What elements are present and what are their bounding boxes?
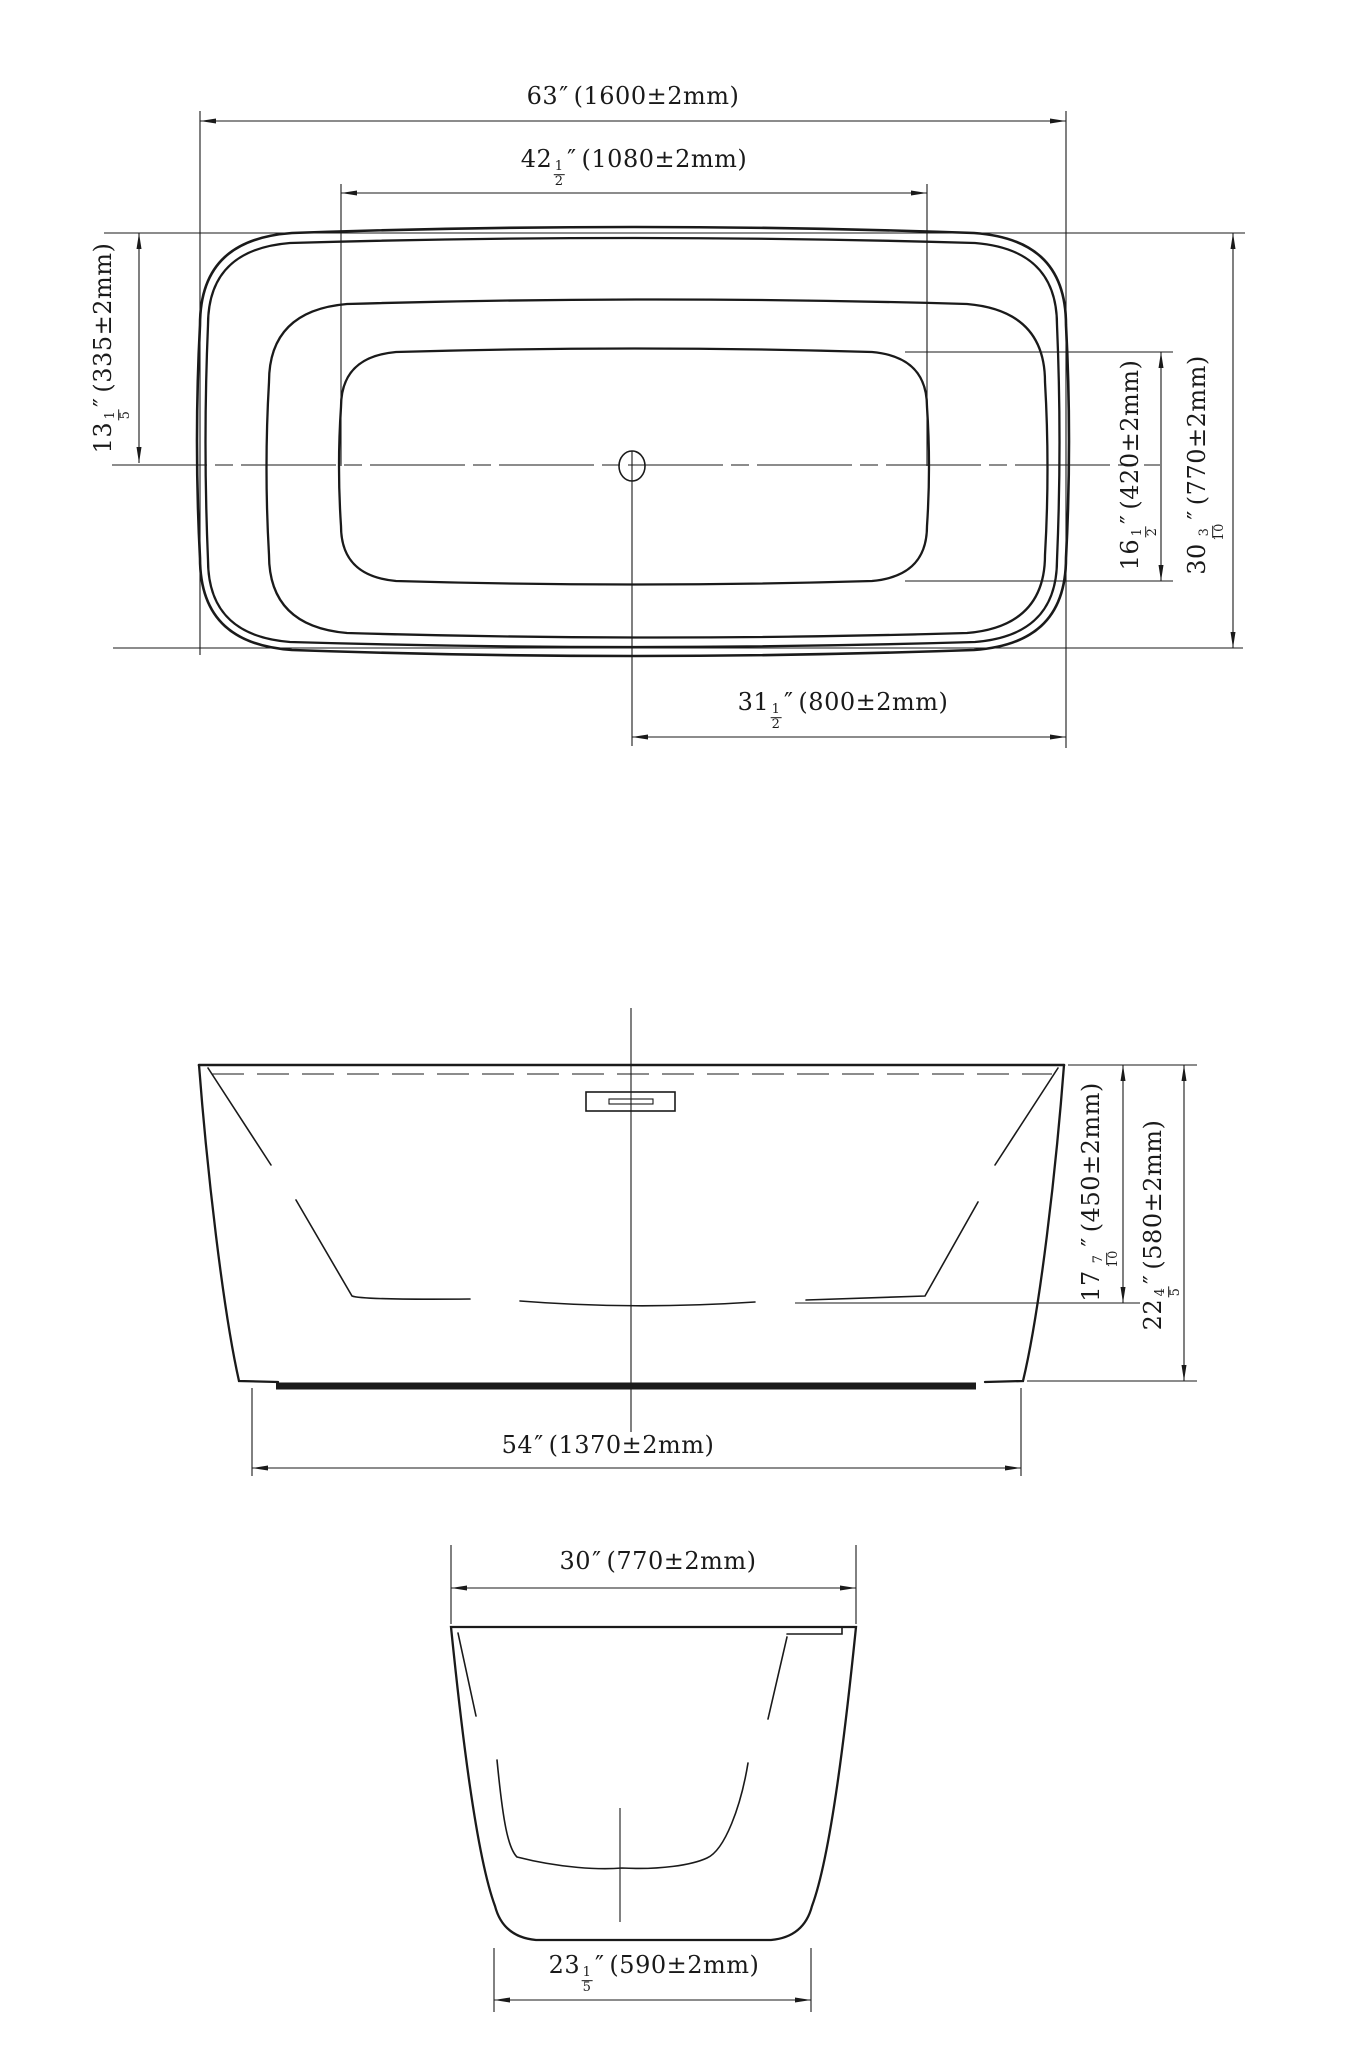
dim-value: 16 xyxy=(1116,539,1144,571)
dim-value: 22 xyxy=(1139,1299,1167,1331)
dim-metric: (450±2mm) xyxy=(1077,1082,1105,1232)
dim-metric: (335±2mm) xyxy=(89,243,117,393)
plan-outer-rim-outline xyxy=(197,227,1069,656)
plan-view xyxy=(104,111,1245,748)
inch-mark: ″ xyxy=(595,1951,604,1979)
inch-mark: ″ xyxy=(1139,1275,1167,1284)
dim-fraction: 15 xyxy=(104,409,133,421)
inch-mark: ″ xyxy=(1116,515,1144,524)
inch-mark: ″ xyxy=(89,398,117,407)
end-overflow-notch xyxy=(787,1628,842,1634)
front-interior-right-edge xyxy=(995,1068,1058,1165)
dim-fraction: 310 xyxy=(1198,522,1227,543)
plan-basin-bottom-outline xyxy=(339,349,929,585)
dim-fraction: 710 xyxy=(1092,1249,1121,1270)
front-basin-floor-left xyxy=(296,1200,470,1299)
dim-label-front-height: 2245″(580±2mm) xyxy=(1141,1120,1183,1331)
end-view xyxy=(451,1545,856,2012)
dim-label-front-depth: 17710″(450±2mm) xyxy=(1079,1082,1121,1302)
dim-value: 31 xyxy=(738,688,770,716)
dim-value: 54 xyxy=(502,1431,534,1459)
plan-basin-top-outline xyxy=(267,300,1048,638)
end-basin-floor xyxy=(497,1760,748,1869)
inch-mark: ″ xyxy=(592,1547,601,1575)
dim-metric: (1080±2mm) xyxy=(582,145,748,173)
dim-value: 23 xyxy=(549,1951,581,1979)
inch-mark: ″ xyxy=(1077,1237,1105,1246)
inch-mark: ″ xyxy=(784,688,793,716)
dim-fraction: 12 xyxy=(770,703,782,732)
inch-mark: ″ xyxy=(559,82,568,110)
dim-value: 42 xyxy=(521,145,553,173)
dim-fraction: 12 xyxy=(1131,526,1160,538)
front-view xyxy=(199,1008,1197,1476)
dim-label-plan-overall-width: 30310″(770±2mm) xyxy=(1185,355,1227,575)
dim-label-plan-overall-length: 63″(1600±2mm) xyxy=(527,84,740,108)
end-shell-outline xyxy=(451,1627,856,1940)
dim-metric: (1600±2mm) xyxy=(574,82,740,110)
dim-label-plan-drain-to-end: 3112″(800±2mm) xyxy=(738,690,949,732)
dim-value: 30 xyxy=(560,1547,592,1575)
dim-metric: (420±2mm) xyxy=(1116,360,1144,510)
inch-mark: ″ xyxy=(567,145,576,173)
dim-label-front-base-length: 54″(1370±2mm) xyxy=(502,1433,715,1457)
dim-metric: (770±2mm) xyxy=(1183,355,1211,505)
dim-metric: (770±2mm) xyxy=(607,1547,757,1575)
drawing-sheet: 63″(1600±2mm) 4212″(1080±2mm) 1315″(335±… xyxy=(0,0,1350,2048)
inch-mark: ″ xyxy=(534,1431,543,1459)
end-interior-right-edge xyxy=(768,1637,787,1719)
dim-value: 17 xyxy=(1077,1270,1105,1302)
dim-metric: (590±2mm) xyxy=(609,1951,759,1979)
dim-fraction: 45 xyxy=(1154,1286,1183,1298)
dim-label-end-width: 30″(770±2mm) xyxy=(560,1549,757,1573)
dim-fraction: 12 xyxy=(553,160,565,189)
dim-value: 63 xyxy=(527,82,559,110)
dim-metric: (580±2mm) xyxy=(1139,1120,1167,1270)
dim-label-end-base-width: 2315″(590±2mm) xyxy=(549,1953,760,1995)
front-basin-floor-center xyxy=(520,1301,755,1306)
front-basin-floor-right xyxy=(806,1202,978,1300)
dim-metric: (1370±2mm) xyxy=(549,1431,715,1459)
dim-label-plan-basin-length: 4212″(1080±2mm) xyxy=(521,147,748,189)
dim-fraction: 15 xyxy=(581,1966,593,1995)
dim-metric: (800±2mm) xyxy=(798,688,948,716)
dim-value: 30 xyxy=(1183,543,1211,575)
end-interior-left-edge xyxy=(458,1633,476,1716)
inch-mark: ″ xyxy=(1183,510,1211,519)
front-interior-left-edge xyxy=(208,1068,271,1165)
dim-value: 13 xyxy=(89,422,117,454)
dim-label-plan-basin-width: 1612″(420±2mm) xyxy=(1118,360,1160,571)
drawing-linework xyxy=(0,0,1350,2048)
dim-label-plan-end-offset: 1315″(335±2mm) xyxy=(91,243,133,454)
